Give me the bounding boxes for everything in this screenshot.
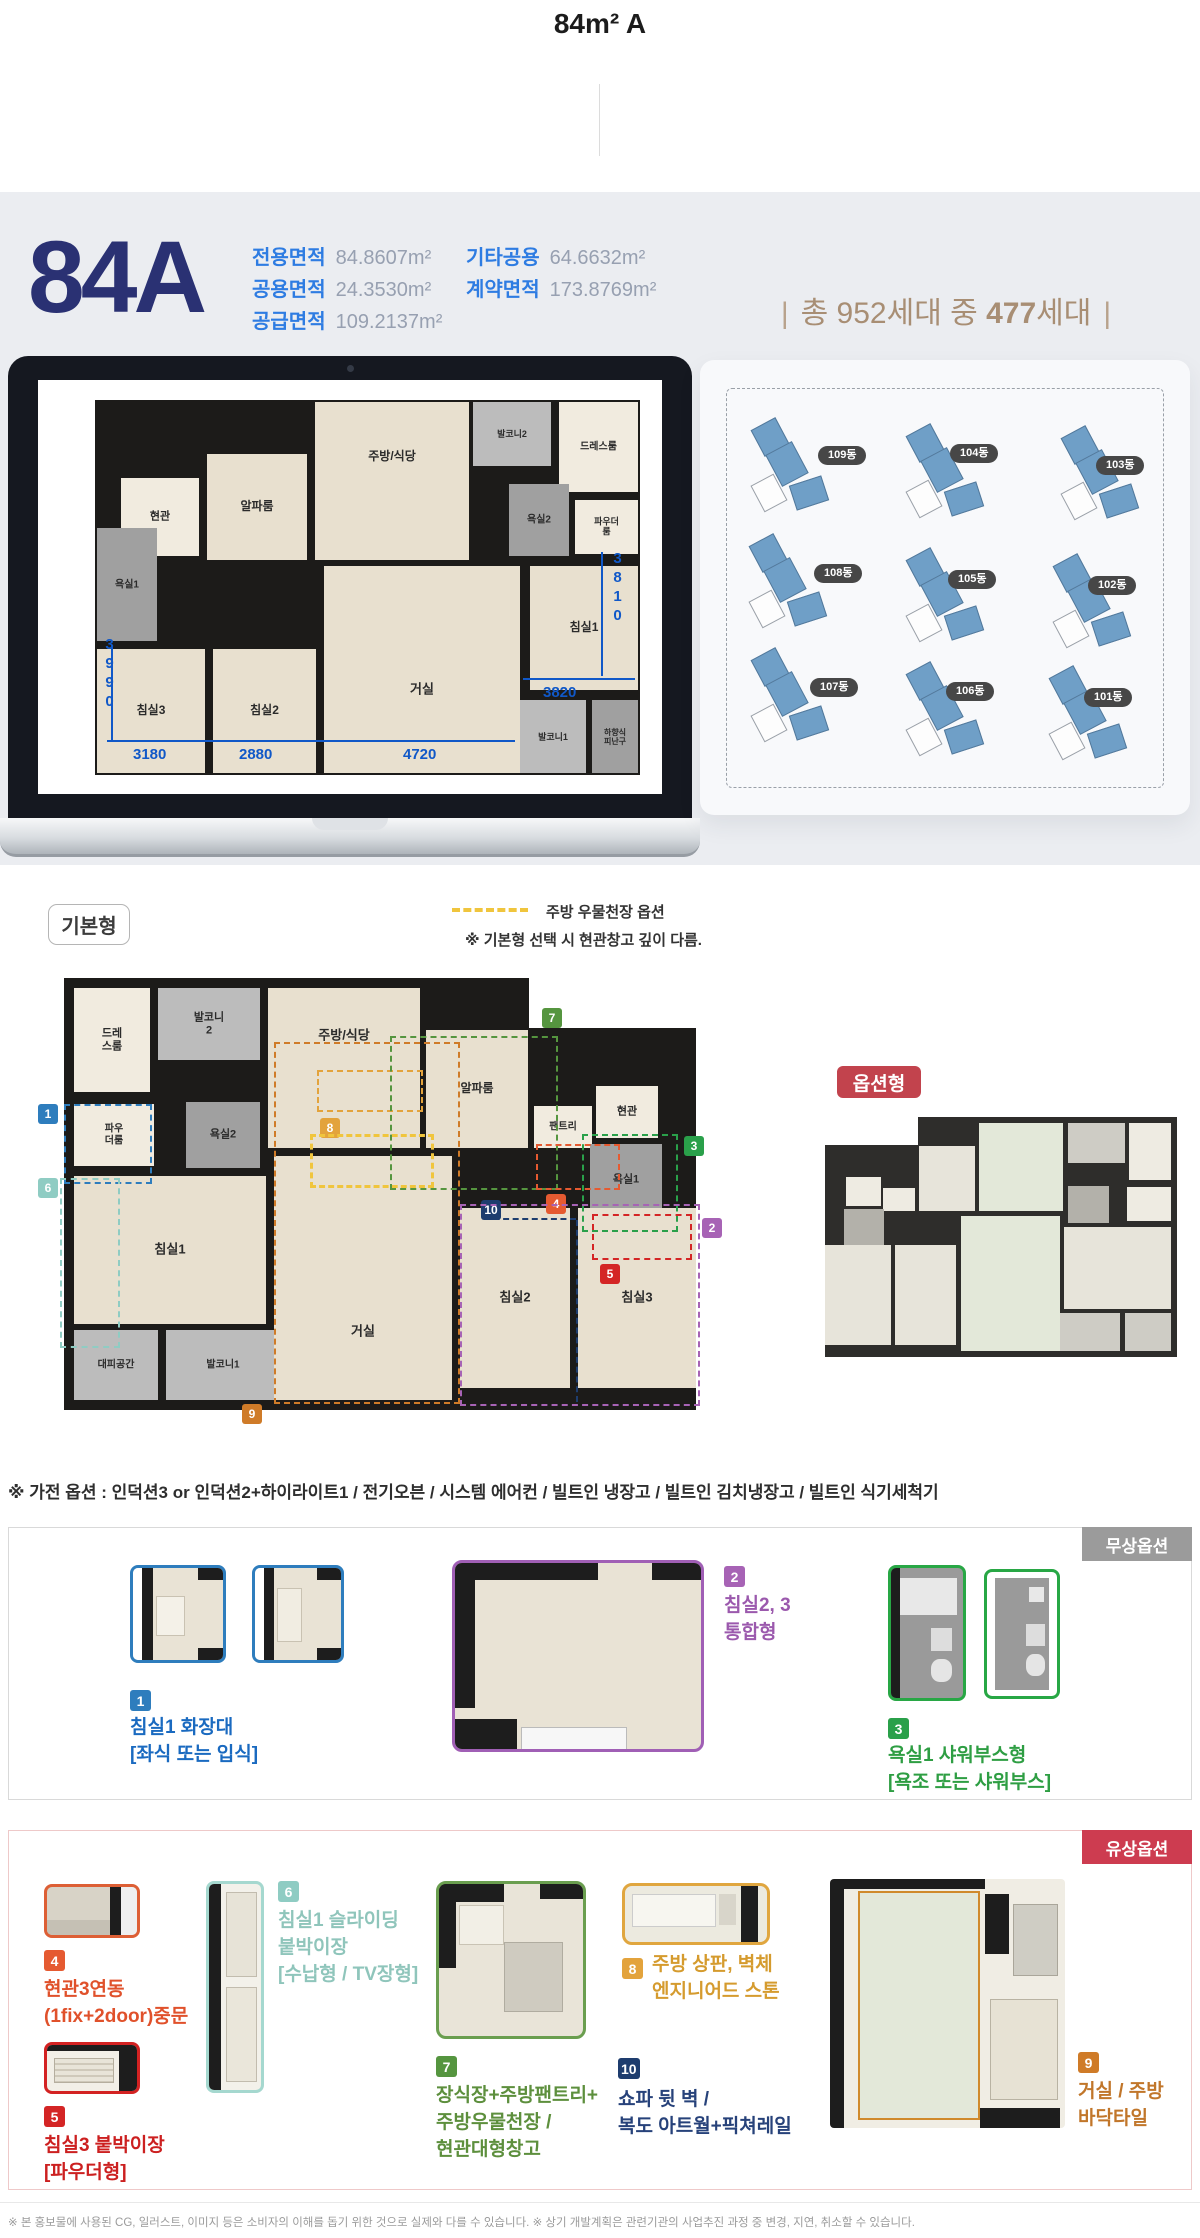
- room-label: 욕실1: [115, 579, 139, 591]
- plan-marker-5: 5: [600, 1264, 620, 1284]
- area-label: 계약면적: [466, 280, 540, 300]
- unit-code: 84A: [28, 226, 203, 328]
- paid-option-5-number: 5: [44, 2106, 65, 2127]
- camera-icon: [347, 365, 354, 372]
- building-101동: [1048, 670, 1128, 765]
- area-value: 24.3530m²: [336, 280, 432, 300]
- thumbnail-bedroom1-sliding-closet: [206, 1881, 264, 2093]
- bar-glyph: |: [781, 297, 789, 330]
- building-pill: 106동: [946, 682, 994, 701]
- room-드레스룸: 드레스룸: [559, 402, 638, 492]
- paid-option-9-label: 거실 / 주방 바닥타일: [1078, 2078, 1164, 2132]
- room-label: 주방/식당: [368, 450, 416, 464]
- area-value: 109.2137m²: [336, 312, 443, 332]
- room-label: 알파룸: [240, 500, 273, 514]
- room-발코니2: 발코니 2: [158, 988, 260, 1060]
- option-zone-6: [60, 1178, 120, 1348]
- site-map-card: 109동104동103동108동105동102동107동106동101동: [700, 360, 1190, 815]
- area-row: 공급면적 109.2137m²: [252, 312, 442, 332]
- plan-marker-6: 6: [38, 1178, 58, 1198]
- room-label: 침실3: [137, 704, 166, 718]
- option-line: 엔지니어드 스톤: [652, 1978, 780, 2005]
- bar-glyph: |: [1103, 297, 1111, 330]
- room-하향식피난구: 하향식 피난구: [592, 700, 638, 773]
- thumbnail-bedroom23-combined: [452, 1560, 704, 1752]
- option-line: 주방 상판, 벽체: [652, 1951, 780, 1978]
- option-line: 현관대형창고: [436, 2136, 598, 2163]
- plan-marker-3: 3: [684, 1136, 704, 1156]
- thumbnail-bath1-shower-b: [984, 1569, 1060, 1699]
- laptop-display: 발코니2드레스룸주방/식당알파룸현관욕실2파우더룸욕실1침실3침실2거실침실1발…: [38, 380, 662, 794]
- free-option-3-label: 욕실1 샤워부스형 [욕조 또는 샤워부스]: [888, 1742, 1051, 1796]
- paid-option-4-label: 현관3연동 (1fix+2door)중문: [44, 1976, 188, 2030]
- area-row: 공용면적 24.3530m²: [252, 280, 431, 300]
- area-label: 전용면적: [252, 248, 326, 268]
- appliance-option-note: ※ 가전 옵션 : 인덕션3 or 인덕션2+하이라이트1 / 전기오븐 / 시…: [8, 1478, 939, 1503]
- building-pill: 109동: [818, 446, 866, 465]
- option-line: 침실1 슬라이딩: [278, 1907, 418, 1934]
- free-option-2-number: 2: [724, 1566, 745, 1587]
- building-104동: [905, 428, 985, 523]
- room-발코니1: [1057, 1313, 1120, 1352]
- room-현관: [846, 1177, 881, 1206]
- room-label: 파우더룸: [591, 517, 623, 538]
- option-line: 쇼파 뒷 벽 /: [618, 2086, 792, 2113]
- building-pill: 105동: [948, 570, 996, 589]
- area-value: 64.6632m²: [550, 248, 646, 268]
- building-unit: [944, 481, 984, 516]
- room-발코니2: 발코니2: [473, 402, 551, 466]
- building-unit: [789, 475, 829, 510]
- dimension-line: [523, 678, 635, 680]
- building-pill: 107동: [810, 678, 858, 697]
- free-option-3-number: 3: [888, 1718, 909, 1739]
- site-buildings: 109동104동103동108동105동102동107동106동101동: [700, 360, 1190, 815]
- building-109동: [750, 422, 830, 517]
- paid-options-badge: 유상옵션: [1082, 1830, 1192, 1864]
- thumbnail-kitchen-countertop: [622, 1883, 770, 1945]
- room-주방/식당: [979, 1123, 1064, 1212]
- room-발코니2: [1068, 1123, 1125, 1163]
- room-label: 발코니 2: [194, 1011, 224, 1036]
- building-108동: [748, 538, 828, 633]
- disclaimer-text: ※ 본 홍보물에 사용된 CG, 일러스트, 이미지 등은 소비자의 이해를 돕…: [8, 2214, 1198, 2230]
- room-팬트리: [883, 1188, 915, 1211]
- paid-option-7-label: 장식장+주방팬트리+ 주방우물천장 / 현관대형창고: [436, 2082, 598, 2163]
- dimension-value: 4720: [403, 746, 436, 763]
- building-unit: [944, 719, 984, 754]
- option-line: [좌식 또는 입식]: [130, 1741, 258, 1768]
- option-line: 침실2, 3: [724, 1592, 791, 1619]
- room-욕실2: [1068, 1186, 1109, 1223]
- paid-option-5-label: 침실3 붙박이장 [파우더형]: [44, 2132, 165, 2186]
- room-알파룸: [919, 1146, 976, 1212]
- room-침실1: [1064, 1227, 1171, 1309]
- option-line: [파우더형]: [44, 2159, 165, 2186]
- plan-marker-7: 7: [542, 1008, 562, 1028]
- area-label: 공급면적: [252, 312, 326, 332]
- paid-option-10-number: 10: [618, 2058, 640, 2079]
- room-파우더룸: [1127, 1187, 1172, 1221]
- room-욕실2: 욕실2: [186, 1102, 260, 1168]
- building-unit: [1091, 611, 1131, 646]
- building-102동: [1052, 558, 1132, 653]
- room-label: 침실1: [154, 1243, 185, 1258]
- option-zone-1: [64, 1104, 152, 1184]
- option-zone-5: [592, 1214, 692, 1260]
- paid-option-10-label: 쇼파 뒷 벽 / 복도 아트월+픽쳐레일: [618, 2086, 792, 2140]
- room-label: 발코니1: [206, 1359, 239, 1371]
- room-label: 침실1: [570, 621, 599, 635]
- room-알파룸: 알파룸: [207, 454, 307, 560]
- room-침실2: [895, 1245, 956, 1345]
- building-unit: [789, 705, 829, 740]
- floorplan-option: [825, 1117, 1177, 1357]
- paid-option-4-number: 4: [44, 1950, 65, 1971]
- dimension-value: 3810: [609, 550, 626, 626]
- room-주방/식당: 주방/식당: [315, 402, 469, 560]
- building-107동: [750, 652, 830, 747]
- laptop-notch: [312, 818, 388, 830]
- building-103동: [1060, 430, 1140, 525]
- paid-option-7-number: 7: [436, 2056, 457, 2077]
- free-option-2-label: 침실2, 3 통합형: [724, 1592, 791, 1646]
- footer-divider: [0, 2202, 1200, 2203]
- option-line: 현관3연동: [44, 1976, 188, 2003]
- room-label: 발코니1: [538, 731, 568, 741]
- area-row: 전용면적 84.8607m²: [252, 248, 431, 268]
- option-type-badge: 옵션형: [837, 1066, 921, 1098]
- thumbnail-bedroom1-vanity-a: [130, 1565, 226, 1663]
- option-line: 욕실1 샤워부스형: [888, 1742, 1051, 1769]
- kitchen-ceiling-legend-line: [452, 908, 528, 912]
- laptop-mockup: 발코니2드레스룸주방/식당알파룸현관욕실2파우더룸욕실1침실3침실2거실침실1발…: [0, 356, 700, 862]
- dimension-value: 3820: [543, 684, 576, 701]
- household-text: 총 952세대 중: [801, 297, 978, 330]
- option-line: 침실1 화장대: [130, 1714, 258, 1741]
- dimension-value: 2880: [239, 746, 272, 763]
- plan-marker-9: 9: [242, 1404, 262, 1424]
- room-드레스룸: [1129, 1123, 1171, 1181]
- room-욕실1: [844, 1209, 884, 1249]
- option-line: [욕조 또는 샤워부스]: [888, 1769, 1051, 1796]
- option-line: 거실 / 주방: [1078, 2078, 1164, 2105]
- building-unit: [944, 605, 984, 640]
- option-line: 통합형: [724, 1619, 791, 1646]
- paid-option-6-number: 6: [278, 1881, 299, 1902]
- free-options-badge: 무상옵션: [1082, 1527, 1192, 1561]
- laptop-screen: 발코니2드레스룸주방/식당알파룸현관욕실2파우더룸욕실1침실3침실2거실침실1발…: [8, 356, 692, 818]
- household-suffix: 세대: [1036, 297, 1091, 330]
- thumbnail-floor-tile-plan: [830, 1879, 1065, 2128]
- floorplan-base: 드레 스룸발코니 2주방/식당알파룸팬트리현관욕실2파우 더룸욕실1침실1대피공…: [64, 978, 696, 1410]
- room-label: 침실2: [250, 704, 279, 718]
- building-pill: 108동: [814, 564, 862, 583]
- room-label: 드레스룸: [580, 441, 617, 453]
- room-발코니1: 발코니1: [520, 700, 586, 773]
- base-type-note: ※ 기본형 선택 시 현관창고 깊이 다름.: [465, 929, 702, 950]
- title-divider: [599, 84, 600, 156]
- room-침실3: [825, 1245, 891, 1345]
- paid-option-8-number: 8: [622, 1958, 643, 1979]
- building-pill: 102동: [1088, 576, 1136, 595]
- room-파우더룸: 파우더룸: [575, 500, 638, 554]
- option-zone-7: [390, 1036, 558, 1190]
- option-line: 주방우물천장 /: [436, 2109, 598, 2136]
- room-발코니1: 발코니1: [166, 1330, 280, 1400]
- area-label: 기타공용: [466, 248, 540, 268]
- building-pill: 103동: [1096, 456, 1144, 475]
- floorplan-laptop: 발코니2드레스룸주방/식당알파룸현관욕실2파우더룸욕실1침실3침실2거실침실1발…: [95, 400, 640, 775]
- paid-option-6-label: 침실1 슬라이딩 붙박이장 [수납형 / TV장형]: [278, 1907, 418, 1988]
- building-pill: 104동: [950, 444, 998, 463]
- base-type-tag: 기본형: [48, 904, 130, 945]
- dimension-value: 3180: [133, 746, 166, 763]
- plan-marker-1: 1: [38, 1104, 58, 1124]
- area-row: 기타공용 64.6632m²: [466, 248, 645, 268]
- room-label: 드레 스룸: [102, 1027, 122, 1052]
- option-line: 복도 아트월+픽쳐레일: [618, 2113, 792, 2140]
- plan-marker-2: 2: [702, 1218, 722, 1238]
- option-line: (1fix+2door)중문: [44, 2003, 188, 2030]
- building-unit: [1099, 483, 1139, 518]
- dimension-line: [601, 552, 603, 676]
- laptop-base: [0, 818, 700, 857]
- option-line: 침실3 붙박이장: [44, 2132, 165, 2159]
- paid-option-9-number: 9: [1078, 2052, 1099, 2073]
- dimension-value: 3990: [101, 636, 118, 712]
- kitchen-ceiling-legend-label: 주방 우물천장 옵션: [546, 901, 665, 922]
- room-label: 발코니2: [497, 429, 527, 439]
- option-line: 붙박이장: [278, 1934, 418, 1961]
- area-value: 84.8607m²: [336, 248, 432, 268]
- room-label: 하향식 피난구: [604, 727, 626, 745]
- area-label: 공용면적: [252, 280, 326, 300]
- household-highlight: 477: [986, 297, 1036, 330]
- page-title: 84m² A: [0, 8, 1200, 40]
- room-욕실1: 욕실1: [97, 528, 157, 641]
- building-pill: 101동: [1084, 688, 1132, 707]
- room-욕실2: 욕실2: [509, 484, 569, 556]
- room-label: 욕실2: [527, 514, 551, 526]
- free-option-1-label: 침실1 화장대 [좌식 또는 입식]: [130, 1714, 258, 1768]
- room-드레스룸: 드레 스룸: [74, 988, 150, 1092]
- thumbnail-bedroom3-closet: [44, 2042, 140, 2094]
- building-105동: [905, 552, 985, 647]
- building-unit: [1087, 723, 1127, 758]
- room-현관: 현관: [596, 1086, 658, 1138]
- option-line: [수납형 / TV장형]: [278, 1961, 418, 1988]
- building-106동: [905, 666, 985, 761]
- room-label: 현관: [150, 511, 170, 524]
- room-label: 거실: [410, 683, 434, 698]
- thumbnail-entrance-door: [44, 1884, 140, 1938]
- option-line: 바닥타일: [1078, 2105, 1164, 2132]
- room-거실: [961, 1216, 1060, 1352]
- area-value: 173.8769m²: [550, 280, 657, 300]
- room-대피공간: [1125, 1313, 1172, 1352]
- paid-option-8-label: 주방 상판, 벽체 엔지니어드 스톤: [652, 1951, 780, 2005]
- room-label: 현관: [617, 1106, 637, 1119]
- option-line: 장식장+주방팬트리+: [436, 2082, 598, 2109]
- thumbnail-bath1-shower-a: [888, 1565, 966, 1701]
- household-count: |총 952세대 중 477세대|: [700, 288, 1192, 332]
- free-option-1-number: 1: [130, 1690, 151, 1711]
- room-label: 대피공간: [98, 1359, 135, 1371]
- thumbnail-bedroom1-vanity-b: [252, 1565, 344, 1663]
- thumbnail-kitchen-pantry-storage: [436, 1881, 586, 2039]
- room-label: 욕실2: [210, 1129, 236, 1142]
- dimension-line: [107, 740, 515, 742]
- area-row: 계약면적 173.8769m²: [466, 280, 656, 300]
- building-unit: [787, 591, 827, 626]
